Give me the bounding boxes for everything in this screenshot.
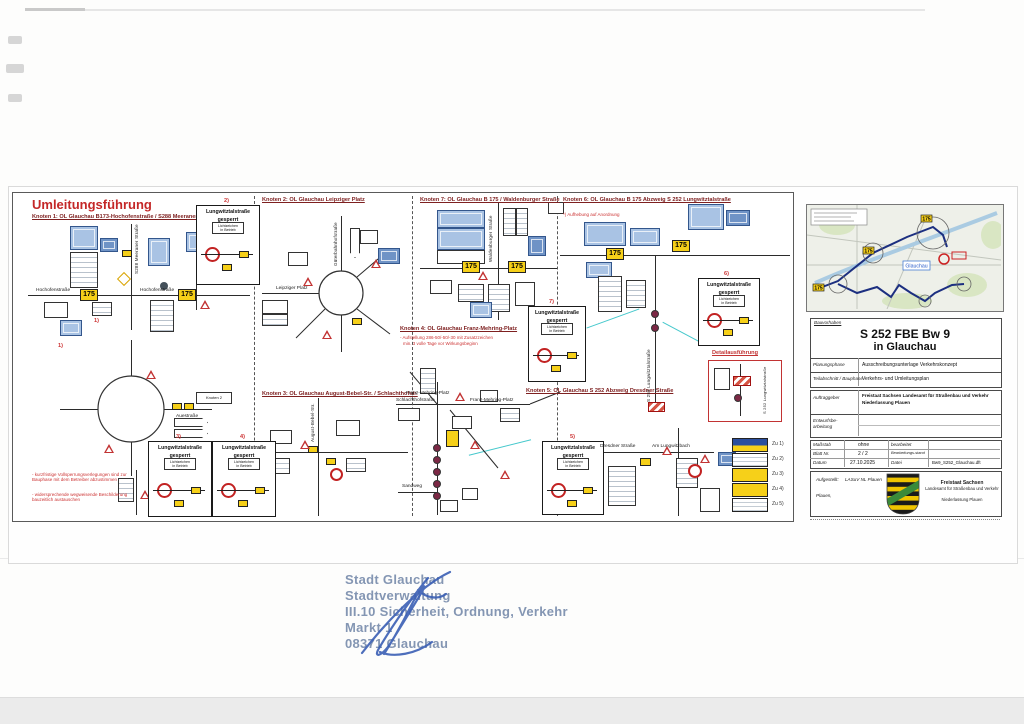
datei-label: Datei [891, 460, 902, 465]
traffic-sign-blue [437, 228, 485, 250]
agency-line2: Landesamt für Straßenbau und Verkehr [924, 487, 1000, 492]
construction-barrier [733, 376, 751, 386]
cell-divider [810, 458, 1000, 459]
knoten4-header: Knoten 4: OL Glauchau Franz-Mehring-Plat… [400, 326, 517, 332]
road-segment [60, 409, 98, 410]
scan-bottom-band [0, 697, 1024, 724]
traffic-sign-stack [346, 458, 366, 472]
road-segment [131, 224, 132, 330]
footnote-red: - kurzfristige Vollsperrungsverlegungen … [32, 472, 144, 483]
scan-smudge [6, 64, 24, 73]
org-label: LASuV NL Plauen [845, 477, 882, 482]
knoten6-header: Knoten 6: OL Glauchau B 175 Abzweig S 25… [563, 197, 731, 203]
stamp-line5: 08371 Glauchau [345, 636, 448, 651]
cell-divider [858, 358, 859, 372]
closure-callout: Lungwitztalstraße gesperrt Lichtzeicheni… [196, 205, 260, 285]
traffic-sign-white [262, 300, 288, 314]
signal-head-icon [433, 456, 441, 464]
traffic-sign-white [440, 500, 458, 512]
traffic-sign-blue [100, 238, 118, 252]
ref-number: 1) [58, 343, 63, 349]
diversion-tag [222, 264, 232, 271]
traffic-sign-blue [584, 222, 626, 246]
knoten-pointer-sign: Knoten 2 [196, 392, 232, 404]
legend-sign [732, 483, 768, 497]
masstab-label: Maßstab [813, 442, 831, 447]
cell-divider [844, 440, 845, 467]
road-segment [420, 268, 557, 269]
plan-title: Umleitungsführung [32, 197, 152, 212]
traffic-sign-stack [598, 276, 622, 312]
street-label: Am Lungwitzbach [652, 444, 690, 449]
street-label: Schlachthofstraße [396, 398, 435, 403]
road-segment [28, 295, 250, 296]
datum-label: Datum [813, 460, 827, 465]
svg-text:175: 175 [922, 217, 931, 223]
street-label: Hochofenstraße [36, 288, 70, 293]
svg-text:175: 175 [864, 249, 873, 255]
construction-barrier [648, 402, 665, 412]
signal-head-icon [433, 444, 441, 452]
planungsphase-value: Ausschreibungsunterlage Verkehrskonzept [862, 362, 957, 368]
agency-line3: Niederlassung Plauen [928, 497, 996, 502]
route-shield-175: 175 [80, 289, 98, 301]
overview-map: 175 175 175 Glauchau [806, 204, 1004, 312]
diversion-tag [326, 458, 336, 465]
yield-sign [478, 271, 488, 280]
diversion-tag [239, 251, 249, 258]
signal-head-icon [651, 324, 659, 332]
road-segment [341, 216, 342, 271]
ref-number: 7) [549, 299, 554, 305]
closed-road-sign [688, 464, 702, 478]
yield-sign [104, 444, 114, 453]
ref-number: 3) [176, 434, 181, 440]
bauvorhaben-label: Bauvorhaben [814, 320, 841, 325]
direction-arrow-sign [350, 228, 360, 258]
place-label: Plauen, [816, 493, 832, 498]
street-label: Sandweg [402, 484, 422, 489]
yield-sign [300, 440, 310, 449]
traffic-sign-stack [503, 208, 516, 236]
blatt-value: 2 / 2 [858, 451, 868, 457]
traffic-sign-stack [608, 466, 636, 506]
titleblock-footer-rule [810, 519, 1000, 520]
planungsphase-label: Planungsphase [813, 362, 845, 367]
traffic-sign-blue [688, 204, 724, 230]
overview-map-canvas: 175 175 175 Glauchau [807, 205, 1001, 309]
yield-sign [303, 277, 313, 286]
ref-number: 5) [570, 434, 575, 440]
street-label: S288 Meeraner Straße [134, 228, 139, 274]
diversion-tag [640, 458, 651, 466]
yield-sign [200, 300, 210, 309]
traffic-sign-white [515, 282, 535, 306]
direction-arrow-sign [174, 418, 208, 427]
street-label: Franz-Mehring-Platz [406, 391, 449, 396]
cell-divider [858, 425, 1000, 426]
road-segment [594, 452, 714, 453]
traffic-sign-blue [437, 210, 485, 228]
road-segment [396, 404, 530, 405]
svg-text:175: 175 [814, 286, 823, 292]
legend-label: Zu 3) [772, 471, 784, 477]
scan-streak [25, 9, 925, 11]
traffic-sign-white [462, 488, 478, 500]
street-label: S 252 Lungwitztalstraße [646, 342, 651, 402]
road-segment [341, 315, 342, 352]
yield-sign [322, 330, 332, 339]
road-segment [131, 340, 132, 376]
aufgestellt-label: Aufgestellt: [816, 477, 839, 482]
diversion-tag [172, 403, 182, 410]
road-segment [318, 398, 319, 516]
stamp-line3: III.10 Sicherheit, Ordnung, Verkehr [345, 604, 568, 619]
traffic-sign-blue [470, 302, 492, 318]
traffic-sign-blue [726, 210, 750, 226]
route-shield-175: 175 [606, 248, 624, 260]
saxony-coat-of-arms [886, 473, 920, 515]
street-label: Waldenburger Straße [488, 212, 493, 262]
closure-callout: Lungwitztalstraße gesperrt Lichtzeicheni… [542, 441, 604, 515]
signal-head-icon [433, 480, 441, 488]
entwurf-label2: arbeitung [813, 424, 832, 429]
road-segment [262, 452, 408, 453]
knoten4-note: min. 3 volle Tage vor Wirkungsbeginn [403, 341, 478, 346]
datei-value: Bw9_S252_Glauchau.dft [932, 460, 981, 465]
scan-smudge [8, 36, 22, 44]
traffic-sign-stack [500, 408, 520, 422]
signal-sign [446, 430, 459, 447]
traffic-sign-white [430, 280, 452, 294]
ref-number: 4) [240, 434, 245, 440]
road-segment [262, 293, 319, 294]
traffic-sign-white [288, 252, 308, 266]
route-shield-175: 175 [672, 240, 690, 252]
closure-callout: Lungwitztalstraße gesperrt Lichtzeicheni… [528, 306, 586, 382]
traffic-sign-stack [262, 314, 288, 326]
datum-value: 27.10.2025 [850, 460, 875, 466]
diversion-tag [184, 403, 194, 410]
panel-separator [412, 196, 413, 516]
stamp-line1: Stadt Glauchau [345, 572, 445, 587]
footnote-red: - widersprechende wegweisende Beschilder… [32, 492, 144, 503]
legend-label: Zu 4) [772, 486, 784, 492]
yield-sign [455, 392, 465, 401]
scan-smudge [8, 94, 22, 102]
street-label: Hochofenstraße [140, 288, 174, 293]
traffic-sign-blue [60, 320, 82, 336]
teilabschnitt-value: Verkehrs- und Umleitungsplan [862, 376, 929, 382]
stamp-line2: Stadtverwaltung [345, 588, 451, 603]
road-segment [131, 442, 132, 476]
yield-sign [500, 470, 510, 479]
closure-callout: Lungwitztalstraße gesperrt Lichtzeicheni… [212, 441, 276, 517]
signal-head-icon [433, 468, 441, 476]
street-label: Franz-Mehring-Platz [470, 398, 513, 403]
closure-callout: Lungwitztalstraße gesperrt Lichtzeicheni… [698, 278, 760, 346]
legend-sign [732, 438, 768, 452]
legend-sign [732, 498, 768, 512]
street-label: Dresdner Straße [600, 444, 635, 449]
project-title-line2: in Glauchau [810, 341, 1000, 353]
project-title-line1: S 252 FBE Bw 9 [810, 327, 1000, 341]
ref-number: 6) [724, 271, 729, 277]
traffic-sign-stack [626, 280, 646, 308]
knoten4-note: - Aufstellung 286-50/-50/-30 mit Zusatzz… [400, 335, 493, 340]
traffic-sign-stack [150, 300, 174, 332]
yield-sign [700, 454, 710, 463]
legend-sign [732, 468, 768, 482]
entwurf-label1: Entwurfsbe- [813, 418, 838, 423]
bearbeitet-label: bearbeitet [891, 442, 911, 447]
closed-road-sign [330, 468, 343, 481]
traffic-sign-white [714, 368, 730, 390]
route-shield-175: 175 [508, 261, 526, 273]
street-label: S 252 Lungwitztalstraße [762, 366, 767, 414]
traffic-sign-white [398, 408, 420, 421]
cell-divider [928, 440, 929, 467]
knoten5-header: Knoten 5: OL Glauchau S 252 Abzweig Dres… [526, 388, 673, 394]
detail-label: Detailausführung [712, 350, 758, 356]
traffic-sign-stack [70, 252, 98, 288]
traffic-sign-stack [516, 208, 528, 236]
closure-street: Lungwitztalstraße [197, 209, 259, 215]
street-label: Güterbahnhofstraße [333, 222, 338, 266]
teilabschnitt-label: Teilabschnitt / Bauphase [813, 376, 863, 381]
auftraggeber-value1: Freistaat Sachsen Landesamt für Straßenb… [862, 393, 989, 398]
traffic-sign-blue [378, 248, 400, 264]
scan-streak [25, 8, 85, 11]
street-label: Leipziger Platz [276, 286, 307, 291]
legend-label: Zu 5) [772, 501, 784, 507]
traffic-sign-stack [92, 302, 112, 316]
traffic-sign-white [452, 416, 472, 429]
knoten2-header: Knoten 2: OL Glauchau Leipziger Platz [262, 197, 365, 203]
diversion-tag [352, 318, 362, 325]
traffic-sign-blue [148, 238, 170, 266]
traffic-sign-white [548, 202, 564, 214]
auftraggeber-value2: Niederlassung Plauen [862, 400, 910, 405]
closure-subsign: Lichtzeichenin Betrieb [212, 222, 244, 234]
stamp-line4: Markt 1 [345, 620, 393, 635]
traffic-sign-blue [630, 228, 660, 246]
yield-sign [371, 259, 381, 268]
yield-sign [470, 440, 480, 449]
route-shield-175: 175 [178, 289, 196, 301]
traffic-sign-blue [528, 236, 546, 256]
scanned-plan-page: Umleitungsführung Knoten 1: OL Glauchau … [0, 0, 1024, 724]
signal-head-icon [433, 492, 441, 500]
legend-label: Zu 2) [772, 456, 784, 462]
cell-divider [888, 440, 889, 467]
knoten6-note: *) Aufhebung auf Anordnung [563, 212, 620, 217]
signal-head-icon [651, 310, 659, 318]
cell-divider [858, 390, 859, 414]
road-segment [398, 492, 438, 493]
auftraggeber-label: Auftraggeber [813, 395, 840, 400]
street-label: Auestraße [176, 414, 198, 419]
traffic-sign-white [336, 420, 360, 436]
traffic-sign-white [44, 302, 68, 318]
ref-number: 2) [224, 198, 229, 204]
road-segment [560, 255, 790, 256]
yield-sign [146, 370, 156, 379]
legend-label: Zu 1) [772, 441, 784, 447]
blatt-label: Blatt Nr. [813, 451, 829, 456]
map-town-label: Glauchau [905, 264, 927, 270]
traffic-sign-white [700, 488, 720, 512]
traffic-sign-white [360, 230, 378, 244]
ref-number: 1) [94, 318, 99, 324]
titleblock-row [810, 414, 1002, 438]
stand-label: Bearbeitungs-stand [891, 451, 927, 455]
road-segment [740, 364, 741, 416]
knoten1-header: Knoten 1: OL Glauchau B173-Hochofenstraß… [32, 214, 208, 220]
signal-head-icon [734, 394, 742, 402]
street-label: August-Bebel-Str. [310, 402, 315, 442]
traffic-sign-stack [458, 284, 484, 302]
closure-callout: Lungwitztalstraße gesperrt Lichtzeicheni… [148, 441, 212, 517]
diversion-tag [122, 250, 132, 257]
knoten7-header: Knoten 7: OL Glauchau B 175 / Waldenburg… [420, 197, 560, 203]
masstab-value: ohne [858, 442, 869, 448]
legend-sign [732, 453, 768, 467]
knoten3-header: Knoten 3: OL Glauchau August-Bebel-Str. … [262, 391, 418, 397]
traffic-sign-blue [70, 226, 98, 250]
